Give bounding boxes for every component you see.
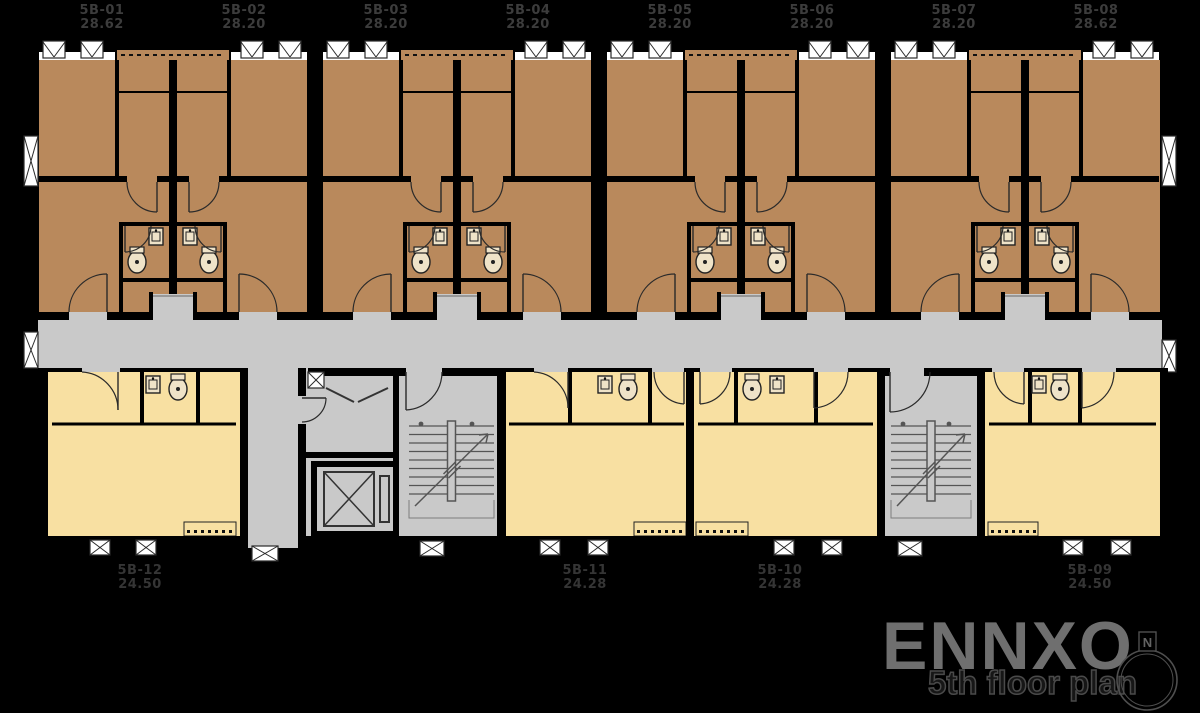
- unit-label-5b-02: 5B-0228.20: [189, 4, 299, 32]
- compass-n-label: N: [1143, 635, 1152, 650]
- floor-plan-drawing: [0, 0, 1200, 713]
- unit-label-5b-07: 5B-0728.20: [899, 4, 1009, 32]
- north-compass-icon: N: [1100, 628, 1200, 713]
- unit-label-5b-10: 5B-1024.28: [725, 564, 835, 592]
- unit-label-5b-05: 5B-0528.20: [615, 4, 725, 32]
- unit-label-5b-08: 5B-0828.62: [1041, 4, 1151, 32]
- floor-plan-image: 5B-0128.62 5B-0228.20 5B-0328.20 5B-0428…: [0, 0, 1200, 713]
- unit-label-5b-01: 5B-0128.62: [47, 4, 157, 32]
- unit-label-5b-11: 5B-1124.28: [530, 564, 640, 592]
- unit-label-5b-12: 5B-1224.50: [85, 564, 195, 592]
- unit-label-5b-04: 5B-0428.20: [473, 4, 583, 32]
- unit-label-5b-09: 5B-0924.50: [1035, 564, 1145, 592]
- unit-label-5b-06: 5B-0628.20: [757, 4, 867, 32]
- unit-label-5b-03: 5B-0328.20: [331, 4, 441, 32]
